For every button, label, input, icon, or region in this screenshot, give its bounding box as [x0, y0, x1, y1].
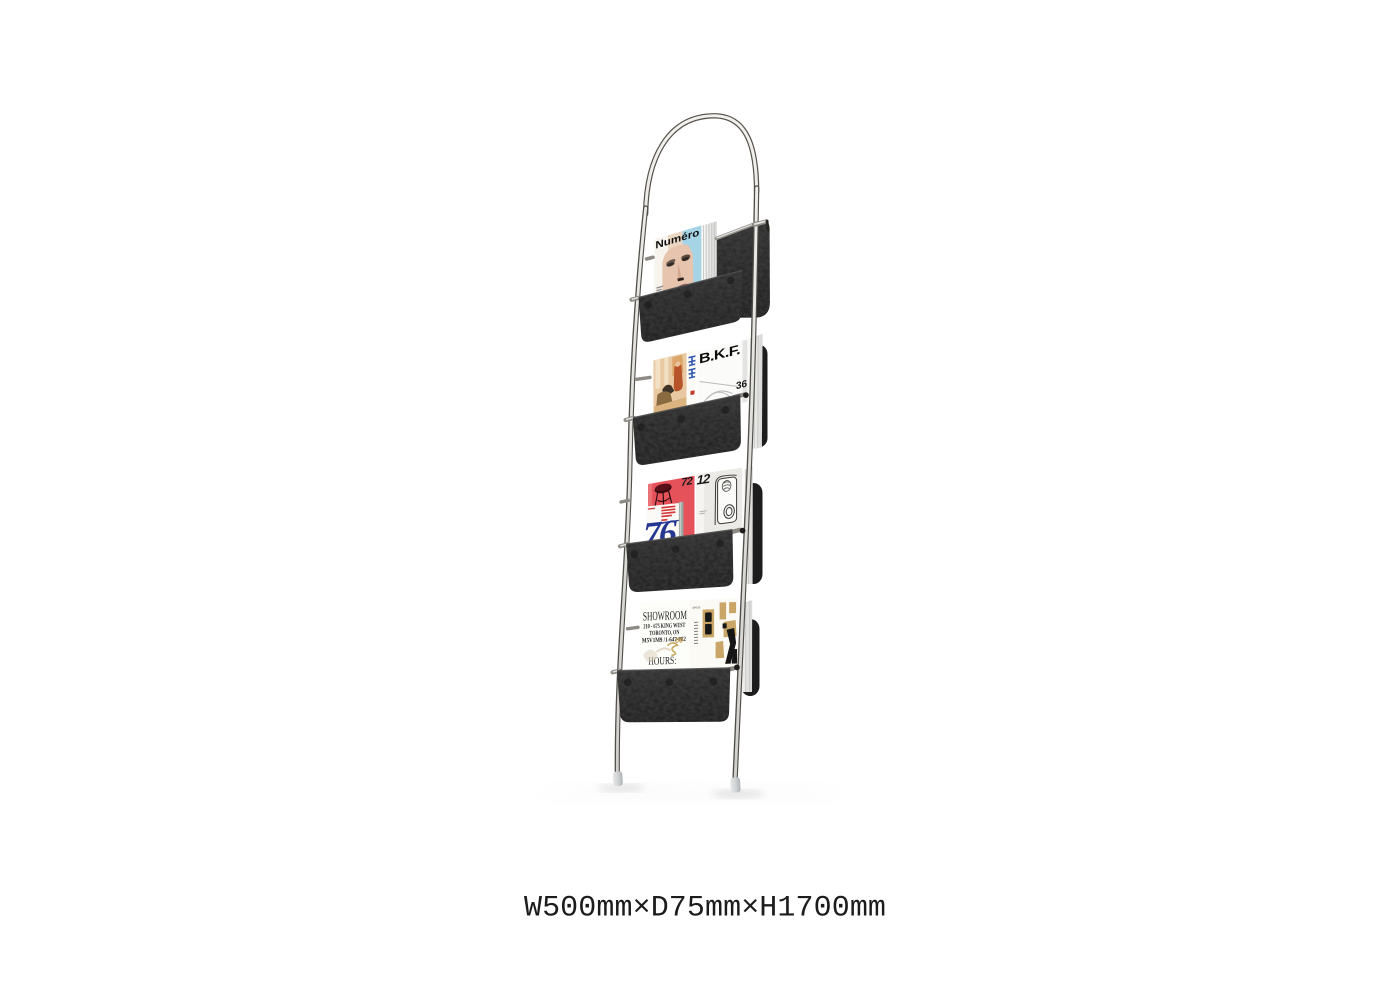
svg-text:72: 72 [681, 475, 693, 489]
svg-text:W500mm×D75mm×H1700mm: W500mm×D75mm×H1700mm [524, 892, 886, 926]
svg-text:press: press [693, 605, 701, 609]
svg-text:SHOWROOM: SHOWROOM [643, 608, 687, 624]
svg-text:12: 12 [697, 471, 711, 488]
svg-text:00: 00 [675, 638, 683, 645]
